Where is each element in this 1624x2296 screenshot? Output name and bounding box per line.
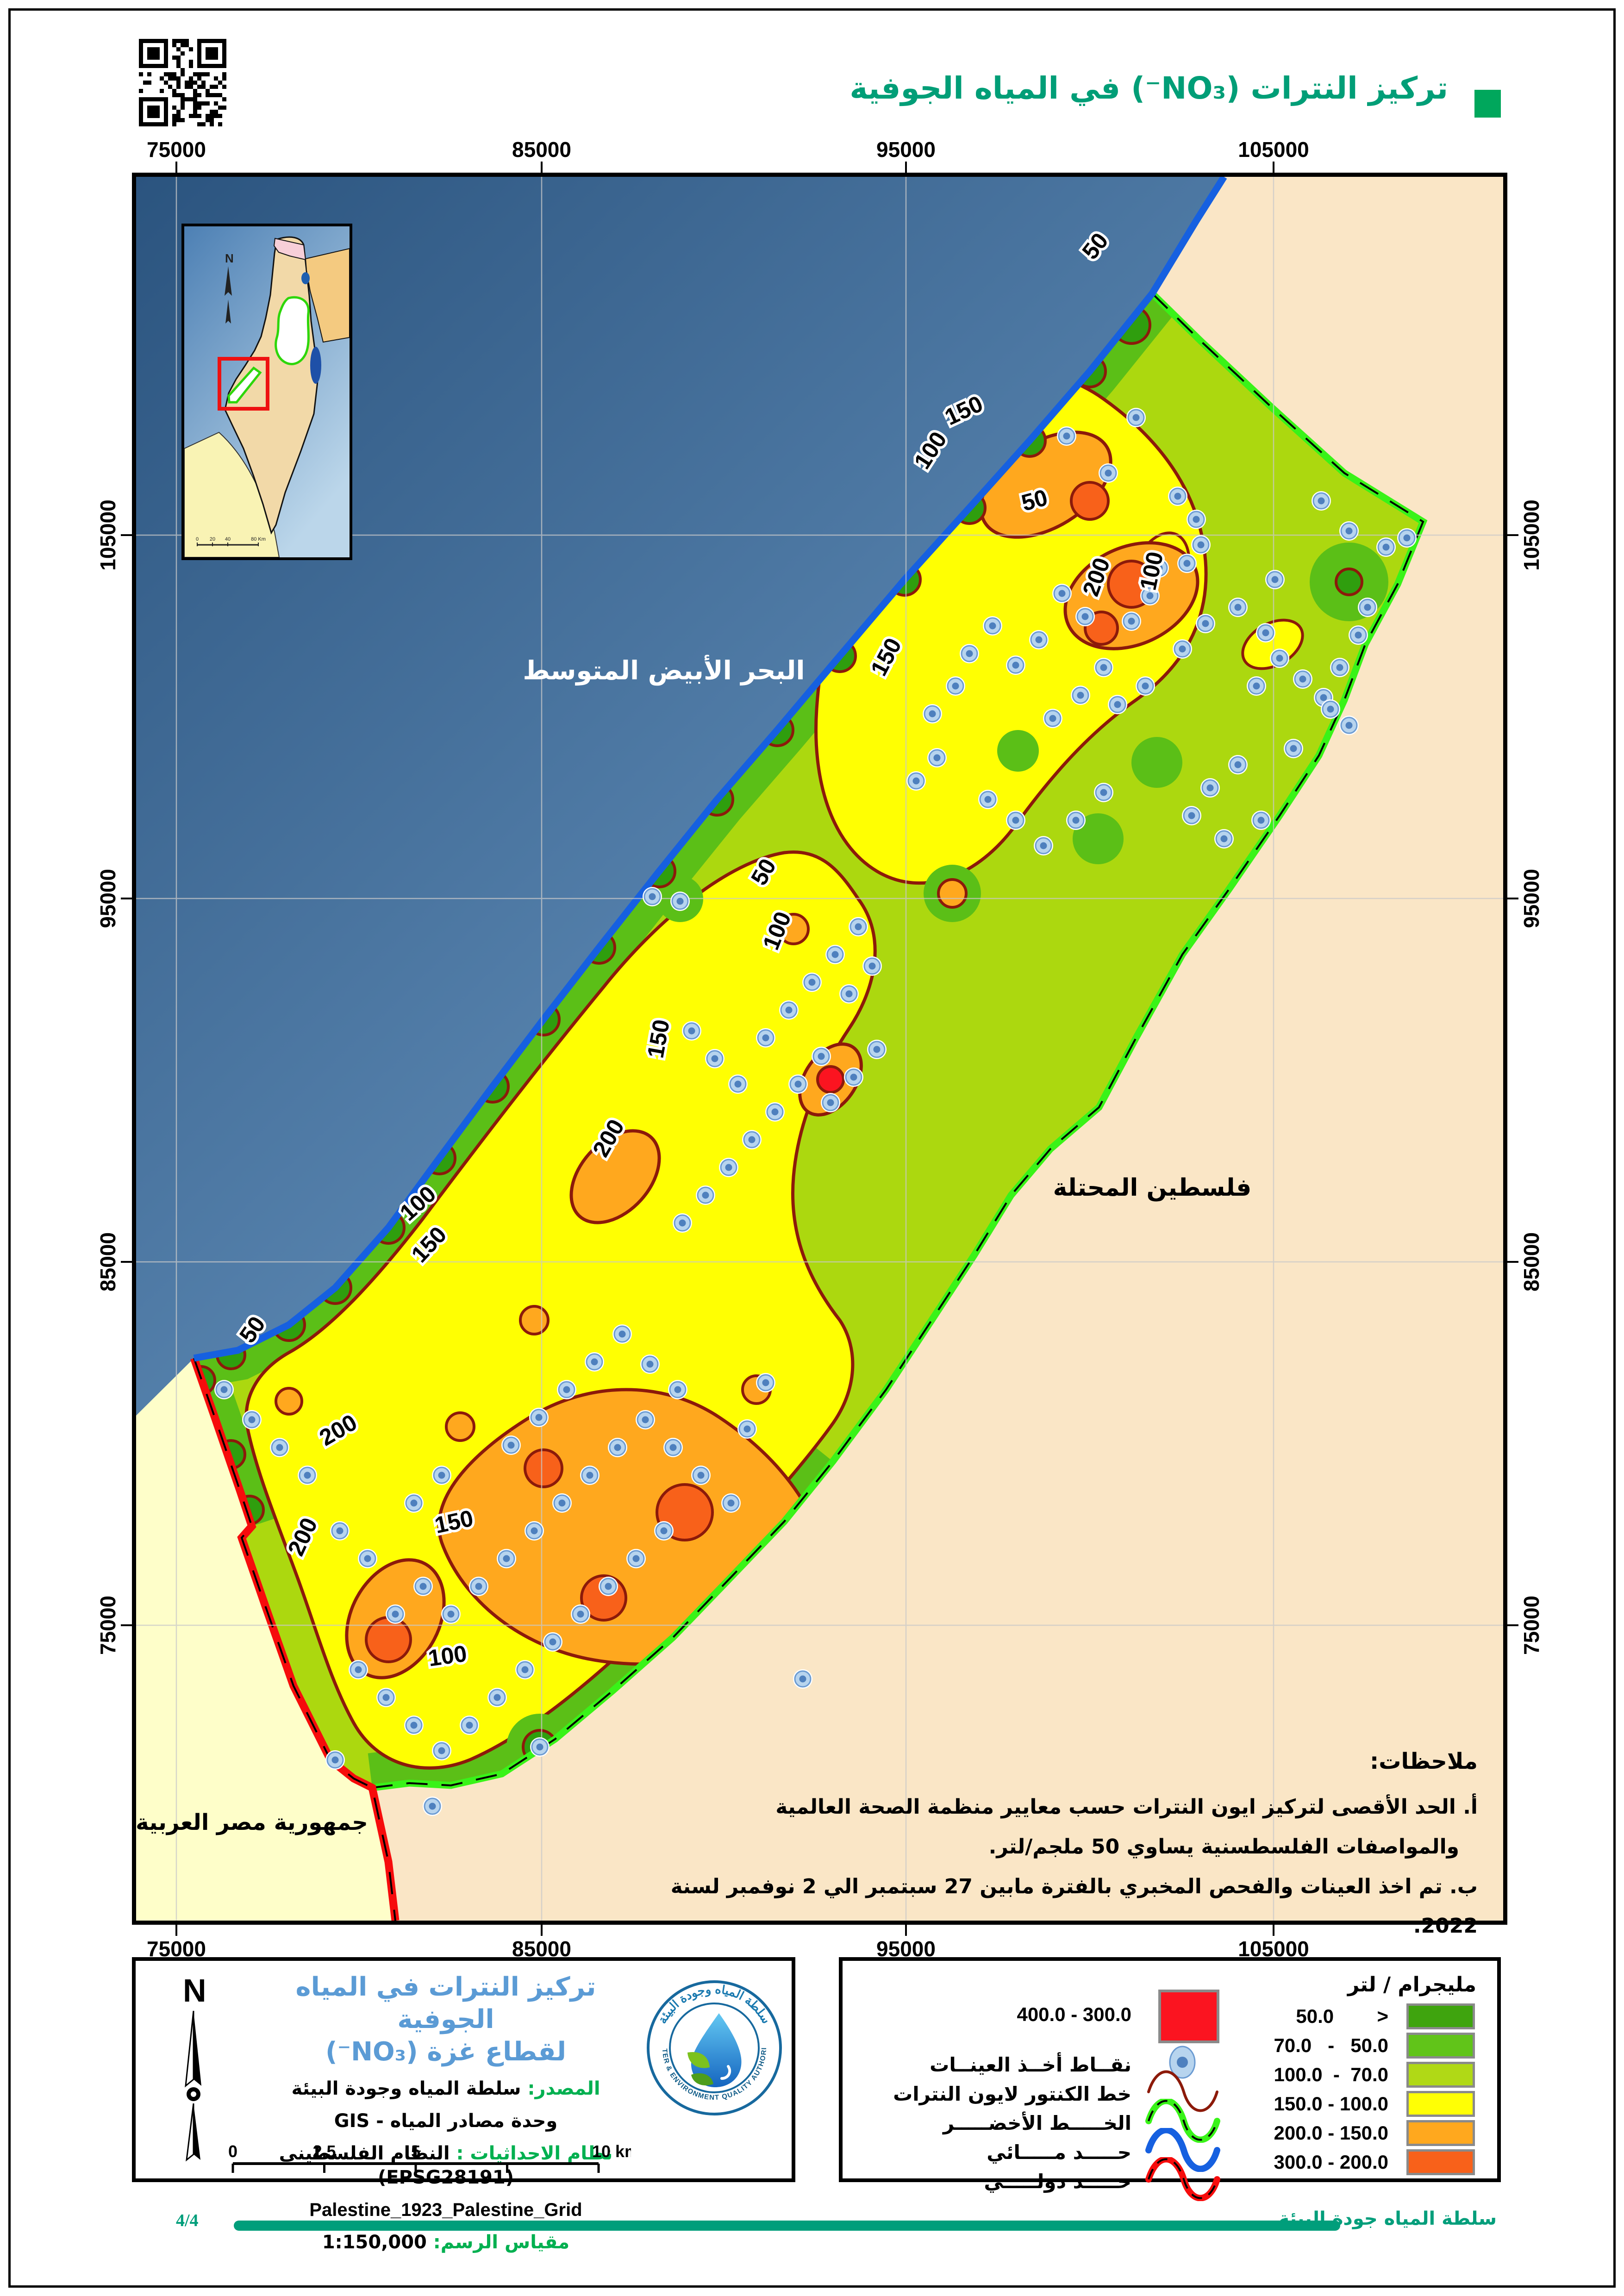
sample-point	[543, 1632, 562, 1652]
map-frame: 5015010050100200150501001502001001502001…	[132, 173, 1507, 1925]
axis-label-y-right: 75000	[1519, 1596, 1544, 1655]
page-title: تركيز النترات (NO₃⁻) في المياه الجوفية	[849, 70, 1448, 106]
qr-code	[139, 39, 228, 128]
sample-point	[460, 1716, 479, 1735]
sample-point	[802, 973, 822, 992]
sample-point	[585, 1352, 604, 1372]
sample-point	[1108, 695, 1127, 714]
sample-point	[844, 1067, 863, 1087]
sample-point	[1321, 699, 1340, 719]
sample-point	[1349, 625, 1368, 645]
sample-point	[1228, 598, 1248, 617]
unit-line: وحدة مصادر المياه - GIS	[254, 2109, 638, 2133]
sample-point	[825, 945, 845, 964]
axis-tick	[175, 162, 177, 173]
axis-label-x-top: 105000	[1238, 137, 1309, 162]
svg-text:N: N	[225, 251, 234, 265]
sample-point	[325, 1750, 345, 1770]
axis-label-x-bottom: 105000	[1238, 1936, 1309, 1961]
sample-point	[1200, 778, 1220, 798]
sample-point	[404, 1716, 424, 1735]
sample-point	[358, 1549, 377, 1568]
sample-point	[1270, 649, 1289, 668]
svg-text:0: 0	[228, 2142, 237, 2161]
source-value: سلطة المياه وجودة البيئة	[291, 2078, 521, 2099]
legend-symbol-label: خط الكنتور لايون النترات	[854, 2083, 1131, 2105]
sample-point	[721, 1493, 741, 1513]
legend-box: مليجرام / لتر 400.0 - 300.0 50.0 >70.0 -…	[839, 1957, 1501, 2182]
svg-text:80 Km: 80 Km	[251, 537, 266, 542]
sample-point	[793, 1669, 812, 1689]
scale-line: مقياس الرسم: 1:150,000	[254, 2230, 638, 2254]
sample-point	[728, 1074, 748, 1094]
sample-point	[501, 1435, 521, 1455]
legend-symbol-label: نقــاط أخــذ العينــات	[854, 2053, 1131, 2076]
sample-point	[525, 1521, 544, 1541]
sample-point	[1339, 521, 1359, 541]
axis-tick	[1507, 1624, 1518, 1626]
axis-tick	[541, 162, 543, 173]
authority-logo: سلطة المياه وجودة البيئة WATER & ENVIRON…	[645, 1978, 784, 2117]
sample-point	[705, 1049, 725, 1068]
sample-point	[756, 1028, 775, 1048]
scale-label: مقياس الرسم:	[433, 2232, 569, 2253]
sample-point	[423, 1797, 442, 1816]
sample-point	[1251, 811, 1271, 830]
sample-point	[960, 644, 979, 663]
sample-point	[1094, 783, 1113, 802]
sample-point	[1099, 463, 1118, 483]
sample-point	[529, 1408, 549, 1427]
egypt-label: جمهورية مصر العربية	[136, 1809, 368, 1835]
sample-point	[1006, 811, 1025, 830]
sample-point	[330, 1521, 350, 1541]
svg-text:0: 0	[196, 537, 199, 542]
sample-point	[270, 1438, 289, 1457]
axis-label-y-right: 95000	[1519, 869, 1544, 928]
sample-point	[1094, 658, 1113, 677]
footer-organization: سلطة المياه جودة البيئة	[1279, 2208, 1497, 2229]
legend-class-swatch	[1406, 2062, 1475, 2088]
contour-value-label: 100	[426, 1641, 468, 1672]
sample-point	[1177, 554, 1197, 573]
sample-point	[862, 956, 882, 976]
sample-point	[432, 1741, 451, 1760]
source-line: المصدر: سلطة المياه وجودة البيئة	[254, 2077, 638, 2101]
sample-point	[696, 1185, 715, 1205]
notes-line-a2: والمواصفات الفلسطسنية يساوي 50 ملجم/لتر.	[668, 1827, 1478, 1867]
sample-point	[413, 1577, 433, 1596]
sample-point	[691, 1466, 711, 1485]
scale-value: 1:150,000	[322, 2232, 427, 2253]
inset-locator-map: N 0204080 Km	[181, 224, 352, 560]
sample-point	[1228, 755, 1248, 774]
sample-point	[839, 984, 859, 1004]
axis-label-x-bottom: 95000	[876, 1936, 936, 1961]
axis-label-y-right: 105000	[1519, 499, 1544, 571]
sample-point	[1191, 535, 1211, 555]
sample-point	[1034, 836, 1053, 855]
legend-class-swatch	[1406, 2003, 1475, 2029]
sample-point	[298, 1466, 317, 1485]
sample-point	[487, 1688, 507, 1707]
sample-point	[1029, 630, 1049, 649]
sample-point	[682, 1021, 701, 1041]
axis-label-y-left: 105000	[95, 499, 120, 571]
sample-point	[497, 1549, 516, 1568]
inset-sea-of-galilee	[301, 272, 310, 284]
notes-line-a1: أ. الحد الأقصى لتركيز ايون النترات حسب م…	[668, 1787, 1478, 1827]
sample-point	[1265, 570, 1285, 589]
north-arrow-icon: N	[163, 1975, 224, 2169]
axis-label-y-right: 85000	[1519, 1232, 1544, 1291]
sample-point	[1330, 658, 1349, 677]
sample-point	[742, 1130, 762, 1149]
box-title-line1: تركيز النترات في المياه الجوفية	[254, 1971, 638, 2036]
sample-point	[654, 1521, 674, 1541]
axis-tick	[905, 162, 907, 173]
axis-label-x-bottom: 85000	[512, 1936, 571, 1961]
sample-point	[1168, 487, 1187, 506]
legend-class-swatch	[1406, 2033, 1475, 2059]
legend-class-swatch	[1406, 2149, 1475, 2175]
sample-point	[376, 1688, 396, 1707]
sample-point	[1136, 676, 1155, 696]
sample-point	[923, 704, 942, 724]
sample-point	[719, 1158, 738, 1177]
sample-point	[432, 1466, 451, 1485]
sample-point	[1043, 709, 1062, 728]
axis-label-y-left: 75000	[95, 1596, 120, 1655]
sample-point	[1075, 607, 1095, 626]
sample-point	[670, 892, 690, 911]
svg-text:2.5: 2.5	[312, 2142, 336, 2161]
box-title-line2: لقطاع غزة (NO₃⁻)	[254, 2036, 638, 2068]
sample-point	[640, 1354, 660, 1374]
occupied-palestine-label: فلسطين المحتلة	[1053, 1174, 1252, 1202]
axis-tick	[175, 1925, 177, 1936]
legend-symbol-label: حـــــد دولـــــي	[854, 2170, 1131, 2193]
svg-text:10 km: 10 km	[592, 2142, 631, 2161]
sample-point	[469, 1577, 488, 1596]
legend-symbol-label: الخـــــط الأخضـــــر	[854, 2112, 1131, 2134]
title-accent-square-icon	[1474, 90, 1501, 118]
legend-class-label: 50.0 >	[1189, 2005, 1388, 2028]
inset-west-bank	[276, 297, 309, 364]
legend-class-swatch	[1406, 2120, 1475, 2146]
sample-point	[673, 1213, 692, 1233]
sample-point	[765, 1102, 785, 1122]
sample-point	[812, 1047, 831, 1066]
axis-tick	[121, 534, 132, 536]
legend-class-swatch	[1406, 2091, 1475, 2117]
axis-label-x-top: 95000	[876, 137, 936, 162]
sample-point	[978, 790, 998, 809]
sample-point	[1397, 528, 1417, 548]
sample-point	[756, 1373, 775, 1392]
axis-tick	[1507, 1261, 1518, 1263]
axis-label-y-left: 95000	[95, 869, 120, 928]
sample-point	[1196, 614, 1215, 633]
sample-point	[663, 1438, 683, 1457]
sample-point	[608, 1438, 627, 1457]
sample-point	[349, 1660, 368, 1679]
sample-point	[867, 1040, 887, 1059]
axis-tick	[541, 1925, 543, 1936]
sample-point	[1187, 510, 1206, 529]
legend-symbol-label: حـــــد مـــــائي	[854, 2141, 1131, 2164]
sample-point	[441, 1604, 461, 1624]
sample-point	[404, 1493, 424, 1513]
axis-tick	[1507, 534, 1518, 536]
sample-point	[1057, 426, 1076, 446]
sample-point	[737, 1419, 757, 1439]
sample-point	[612, 1324, 632, 1344]
sample-point	[1173, 639, 1192, 659]
sample-point	[515, 1660, 535, 1679]
svg-text:5: 5	[411, 2142, 420, 2161]
sample-point	[1071, 686, 1090, 705]
sample-point	[1126, 408, 1146, 427]
title-info-box: N تركيز النترات في المياه الجوفية لقطاع …	[132, 1957, 795, 2182]
sample-point	[214, 1380, 234, 1399]
sample-point	[1293, 669, 1312, 689]
source-label: المصدر:	[527, 2078, 600, 2099]
sample-point	[1066, 811, 1086, 830]
sample-point	[1247, 676, 1266, 696]
international-boundary-icon	[1142, 2157, 1223, 2203]
axis-tick	[121, 898, 132, 899]
sample-point	[1182, 806, 1201, 825]
footer-page-number: 4/4	[176, 2210, 199, 2231]
sample-point	[1376, 537, 1396, 557]
sample-point	[636, 1410, 655, 1429]
notes-line-b: ب. تم اخذ العينات والفحص المخبري بالفترة…	[668, 1867, 1478, 1947]
scale-bar: 02.5510 km	[214, 2142, 631, 2179]
axis-label-x-bottom: 75000	[147, 1936, 206, 1961]
sample-point	[552, 1493, 572, 1513]
sample-point	[668, 1380, 687, 1399]
sample-point	[1052, 584, 1072, 603]
sea-name-label: البحر الأبيض المتوسط	[523, 656, 805, 686]
axis-tick	[1273, 162, 1274, 173]
sample-point	[788, 1074, 808, 1094]
svg-text:N: N	[183, 1975, 206, 2009]
legend-unit-label: مليجرام / لتر	[1348, 1973, 1476, 1997]
grid-name-line: Palestine_1923_Palestine_Grid	[254, 2198, 638, 2222]
sample-point	[386, 1604, 405, 1624]
poster-page: تركيز النترات (NO₃⁻) في المياه الجوفية	[0, 0, 1624, 2296]
sample-point	[1312, 491, 1331, 511]
axis-tick	[905, 1925, 907, 1936]
sample-point	[626, 1549, 646, 1568]
sample-point	[643, 887, 662, 906]
sample-point	[571, 1604, 590, 1624]
sample-point	[1122, 611, 1141, 631]
axis-tick	[1273, 1925, 1274, 1936]
axis-tick	[121, 1624, 132, 1626]
notes-heading: ملاحظات:	[668, 1748, 1478, 1774]
axis-label-y-left: 85000	[95, 1232, 120, 1291]
sample-point	[779, 1000, 799, 1020]
svg-text:40: 40	[225, 537, 231, 542]
sample-point	[849, 917, 868, 936]
notes-block: ملاحظات: أ. الحد الأقصى لتركيز ايون النت…	[668, 1748, 1478, 1946]
sample-point	[1358, 598, 1377, 617]
sample-point	[580, 1466, 600, 1485]
sample-point	[242, 1410, 262, 1429]
axis-label-x-top: 85000	[512, 137, 571, 162]
sample-point	[983, 616, 1002, 636]
sample-point	[1339, 716, 1359, 735]
sample-point	[557, 1380, 576, 1399]
sample-point	[1284, 739, 1303, 758]
sample-point	[1214, 829, 1234, 849]
sample-point	[1256, 623, 1275, 643]
legend-red-label: 400.0 - 300.0	[932, 2003, 1131, 2026]
sample-point	[821, 1093, 840, 1112]
sample-point	[599, 1577, 618, 1596]
axis-tick	[1507, 898, 1518, 899]
svg-text:20: 20	[210, 537, 215, 542]
sample-point	[530, 1737, 550, 1757]
sample-point	[946, 676, 965, 696]
axis-label-x-top: 75000	[147, 137, 206, 162]
axis-tick	[121, 1261, 132, 1263]
footer-rule	[234, 2221, 1340, 2231]
sample-point	[906, 771, 926, 791]
sample-point	[1006, 655, 1025, 675]
sample-point	[927, 748, 947, 767]
inset-dead-sea	[310, 347, 321, 384]
